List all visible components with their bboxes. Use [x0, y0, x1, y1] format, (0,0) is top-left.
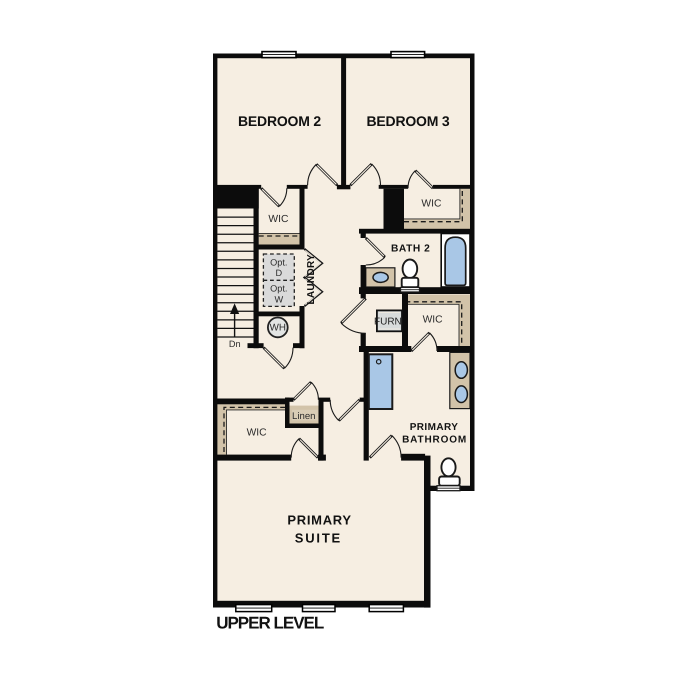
svg-text:Opt.: Opt.: [270, 257, 287, 267]
svg-text:LAUNDRY: LAUNDRY: [306, 254, 317, 305]
svg-text:WIC: WIC: [247, 428, 268, 439]
svg-text:PRIMARY: PRIMARY: [410, 422, 459, 433]
svg-text:PRIMARY: PRIMARY: [287, 513, 351, 528]
svg-text:WH: WH: [270, 323, 286, 334]
svg-text:Linen: Linen: [292, 411, 315, 422]
svg-text:UPPER LEVEL: UPPER LEVEL: [216, 614, 324, 633]
svg-text:WIC: WIC: [268, 214, 289, 225]
svg-text:WIC: WIC: [421, 199, 442, 210]
svg-text:SUITE: SUITE: [295, 531, 342, 546]
svg-text:BEDROOM 2: BEDROOM 2: [238, 113, 321, 129]
svg-text:BEDROOM 3: BEDROOM 3: [367, 113, 450, 129]
svg-text:BATH 2: BATH 2: [391, 244, 430, 255]
svg-text:FURN: FURN: [374, 317, 402, 328]
svg-text:BATHROOM: BATHROOM: [402, 434, 467, 445]
svg-text:W: W: [274, 295, 283, 305]
svg-text:D: D: [275, 268, 282, 278]
svg-text:Dn: Dn: [229, 339, 241, 349]
svg-text:Opt.: Opt.: [270, 284, 287, 294]
svg-text:WIC: WIC: [423, 315, 444, 326]
